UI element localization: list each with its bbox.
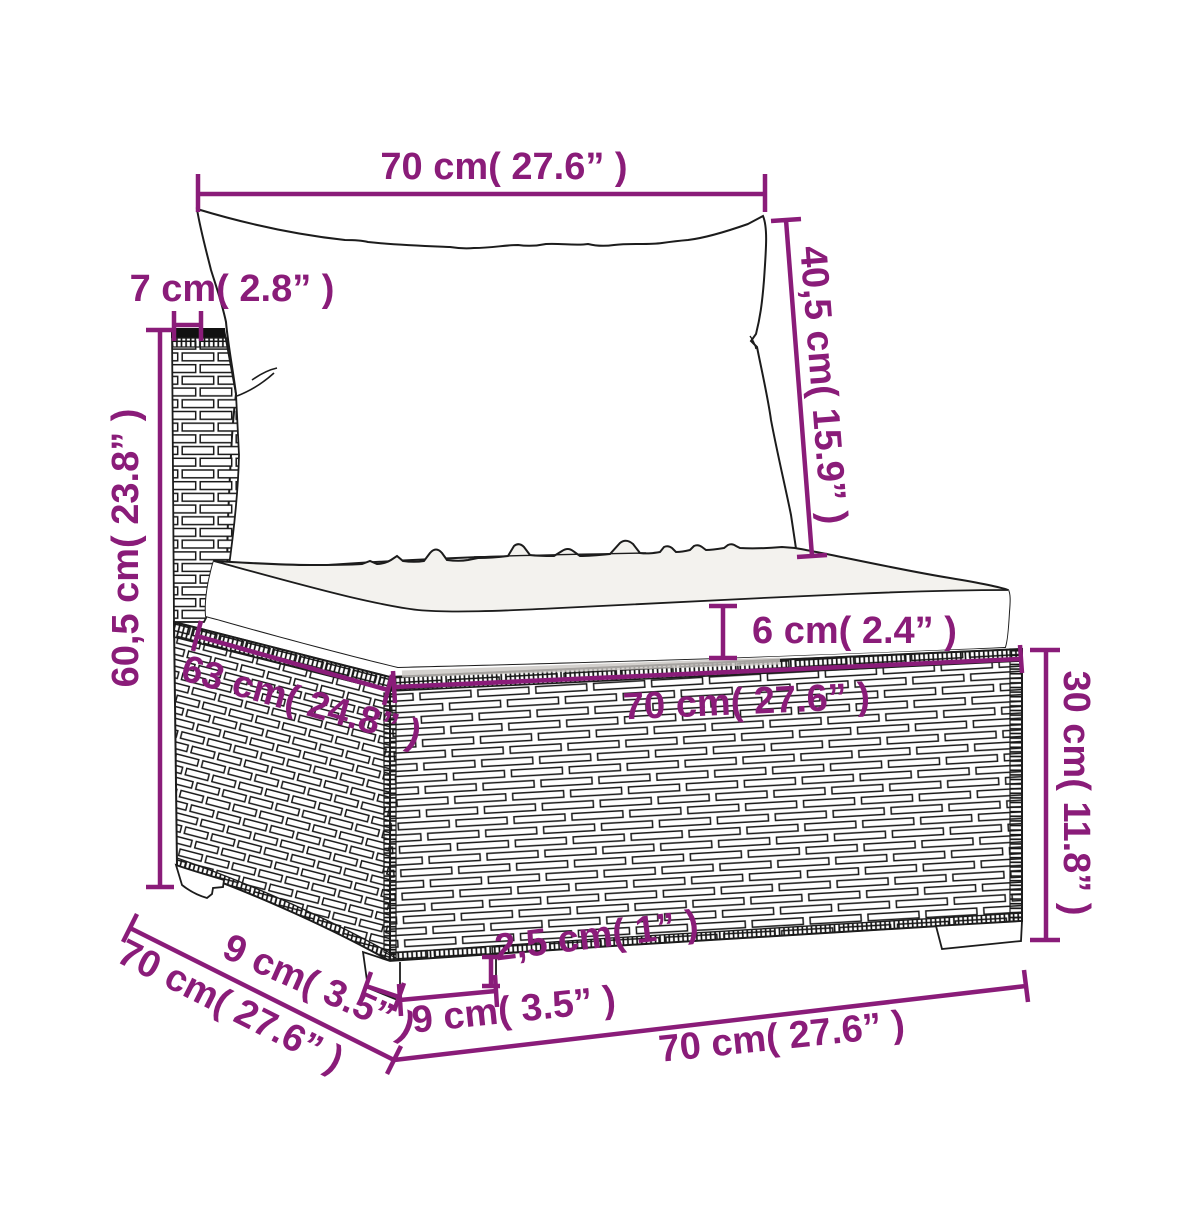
svg-text:6 cm( 2.4” ): 6 cm( 2.4” )	[752, 610, 957, 652]
svg-text:70 cm( 27.6” ): 70 cm( 27.6” )	[380, 146, 627, 188]
svg-text:7 cm( 2.8” ): 7 cm( 2.8” )	[130, 268, 335, 310]
svg-text:60,5 cm( 23.8” ): 60,5 cm( 23.8” )	[105, 409, 147, 688]
svg-text:30 cm( 11.8” ): 30 cm( 11.8” )	[1055, 670, 1097, 915]
